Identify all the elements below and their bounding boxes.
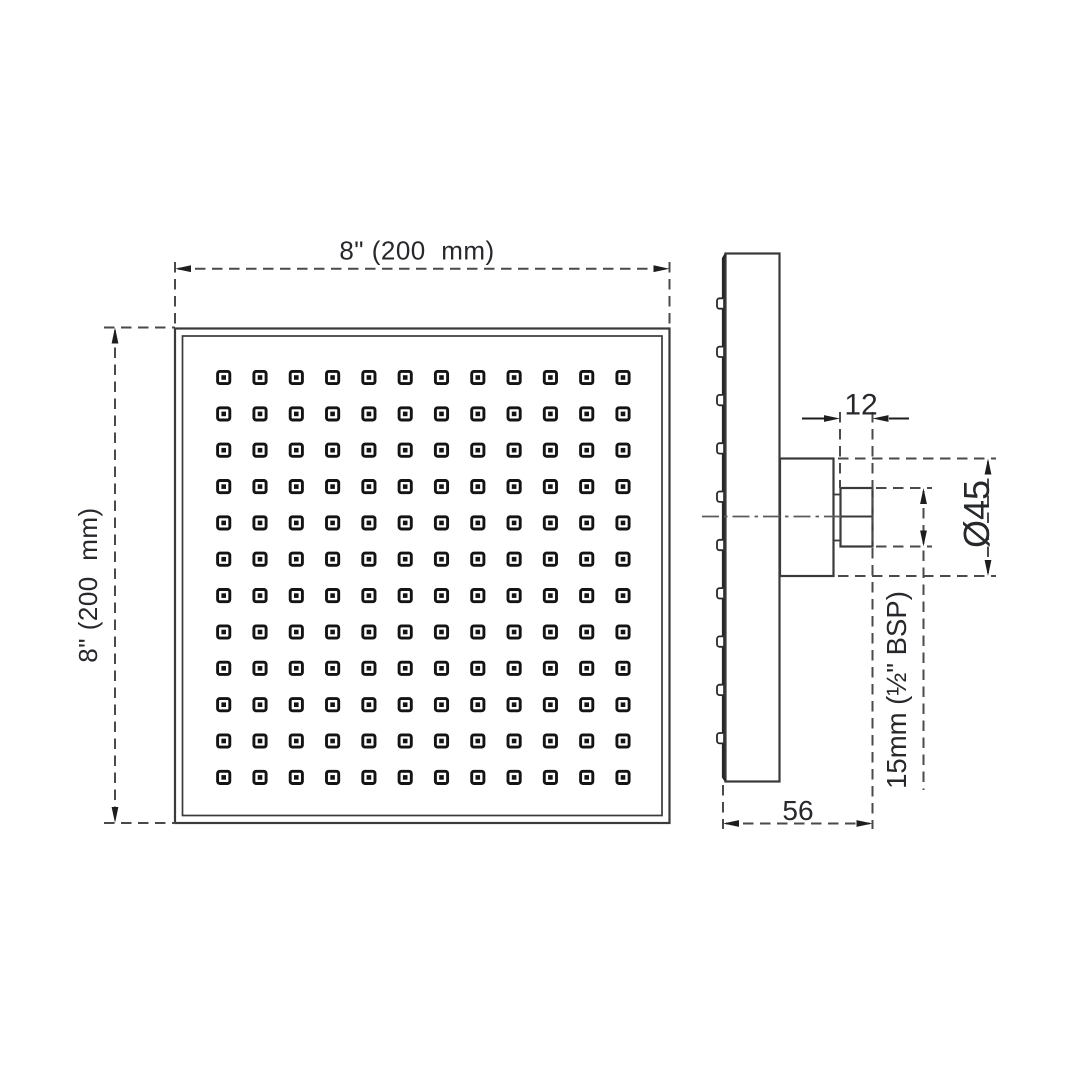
- svg-text:12: 12: [844, 389, 877, 422]
- svg-text:Ø45: Ø45: [956, 480, 997, 548]
- svg-text:56: 56: [782, 795, 813, 826]
- svg-text:8" (200 mm): 8" (200 mm): [339, 236, 494, 266]
- svg-text:8" (200 mm): 8" (200 mm): [73, 507, 103, 662]
- svg-text:15mm (½" BSP): 15mm (½" BSP): [881, 591, 912, 789]
